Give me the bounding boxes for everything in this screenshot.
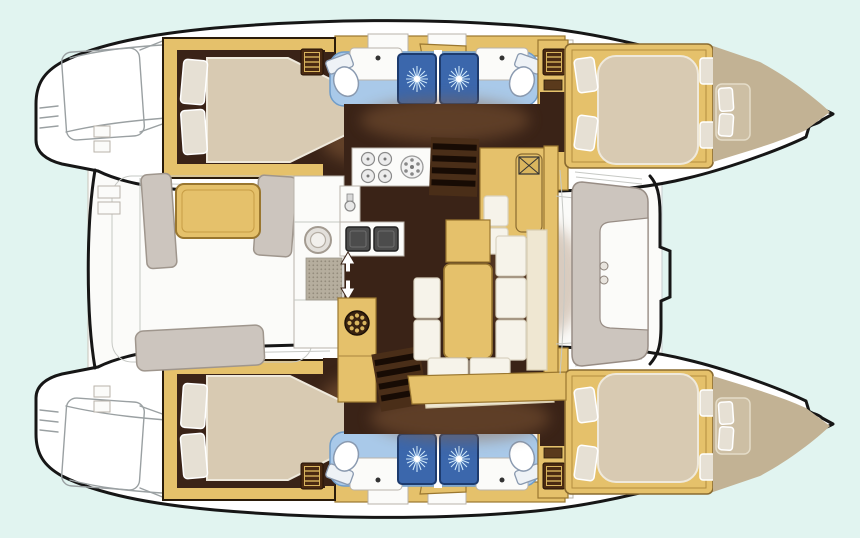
stairs-to-upper-hull xyxy=(429,137,479,197)
forward-cabin xyxy=(565,44,716,168)
floorplan-svg xyxy=(0,0,860,538)
dinette-backrest xyxy=(527,230,547,370)
transom-locker xyxy=(98,202,120,214)
pillow xyxy=(574,115,599,151)
dinette-cushion xyxy=(496,320,526,360)
shower-stall xyxy=(398,54,436,104)
coachroof-band xyxy=(408,372,566,404)
double-bed xyxy=(598,56,698,164)
galley-sideboard xyxy=(294,176,344,348)
deck-fitting xyxy=(600,262,608,270)
pillow xyxy=(180,109,207,155)
pillow xyxy=(574,57,599,93)
cockpit-bench xyxy=(141,173,177,269)
catamaran-floorplan xyxy=(0,0,860,538)
bow-seat-inner xyxy=(600,218,648,330)
companionway-hatch-icon xyxy=(543,49,565,75)
dinette-cushion xyxy=(496,236,526,276)
shower-stall xyxy=(440,54,478,104)
dinette-console xyxy=(446,220,490,262)
entry-mat xyxy=(306,258,342,300)
companionway-hatch-icon xyxy=(301,49,323,75)
cockpit-table xyxy=(176,184,260,238)
dinette-table xyxy=(444,264,492,358)
washer-round-door xyxy=(305,227,331,253)
round-hob xyxy=(401,156,423,178)
vent-cabinet xyxy=(338,298,376,402)
dinette-cushion xyxy=(414,278,440,318)
escape-hatch-icon xyxy=(519,157,539,174)
dinette-cushion xyxy=(496,278,526,318)
deck-fitting xyxy=(600,276,608,284)
fan-vent-icon xyxy=(345,311,369,335)
transom-locker xyxy=(98,186,120,198)
cockpit-bench xyxy=(135,325,265,372)
dinette-cushion xyxy=(414,320,440,360)
sink-counter xyxy=(350,48,402,80)
pillow xyxy=(180,59,208,105)
